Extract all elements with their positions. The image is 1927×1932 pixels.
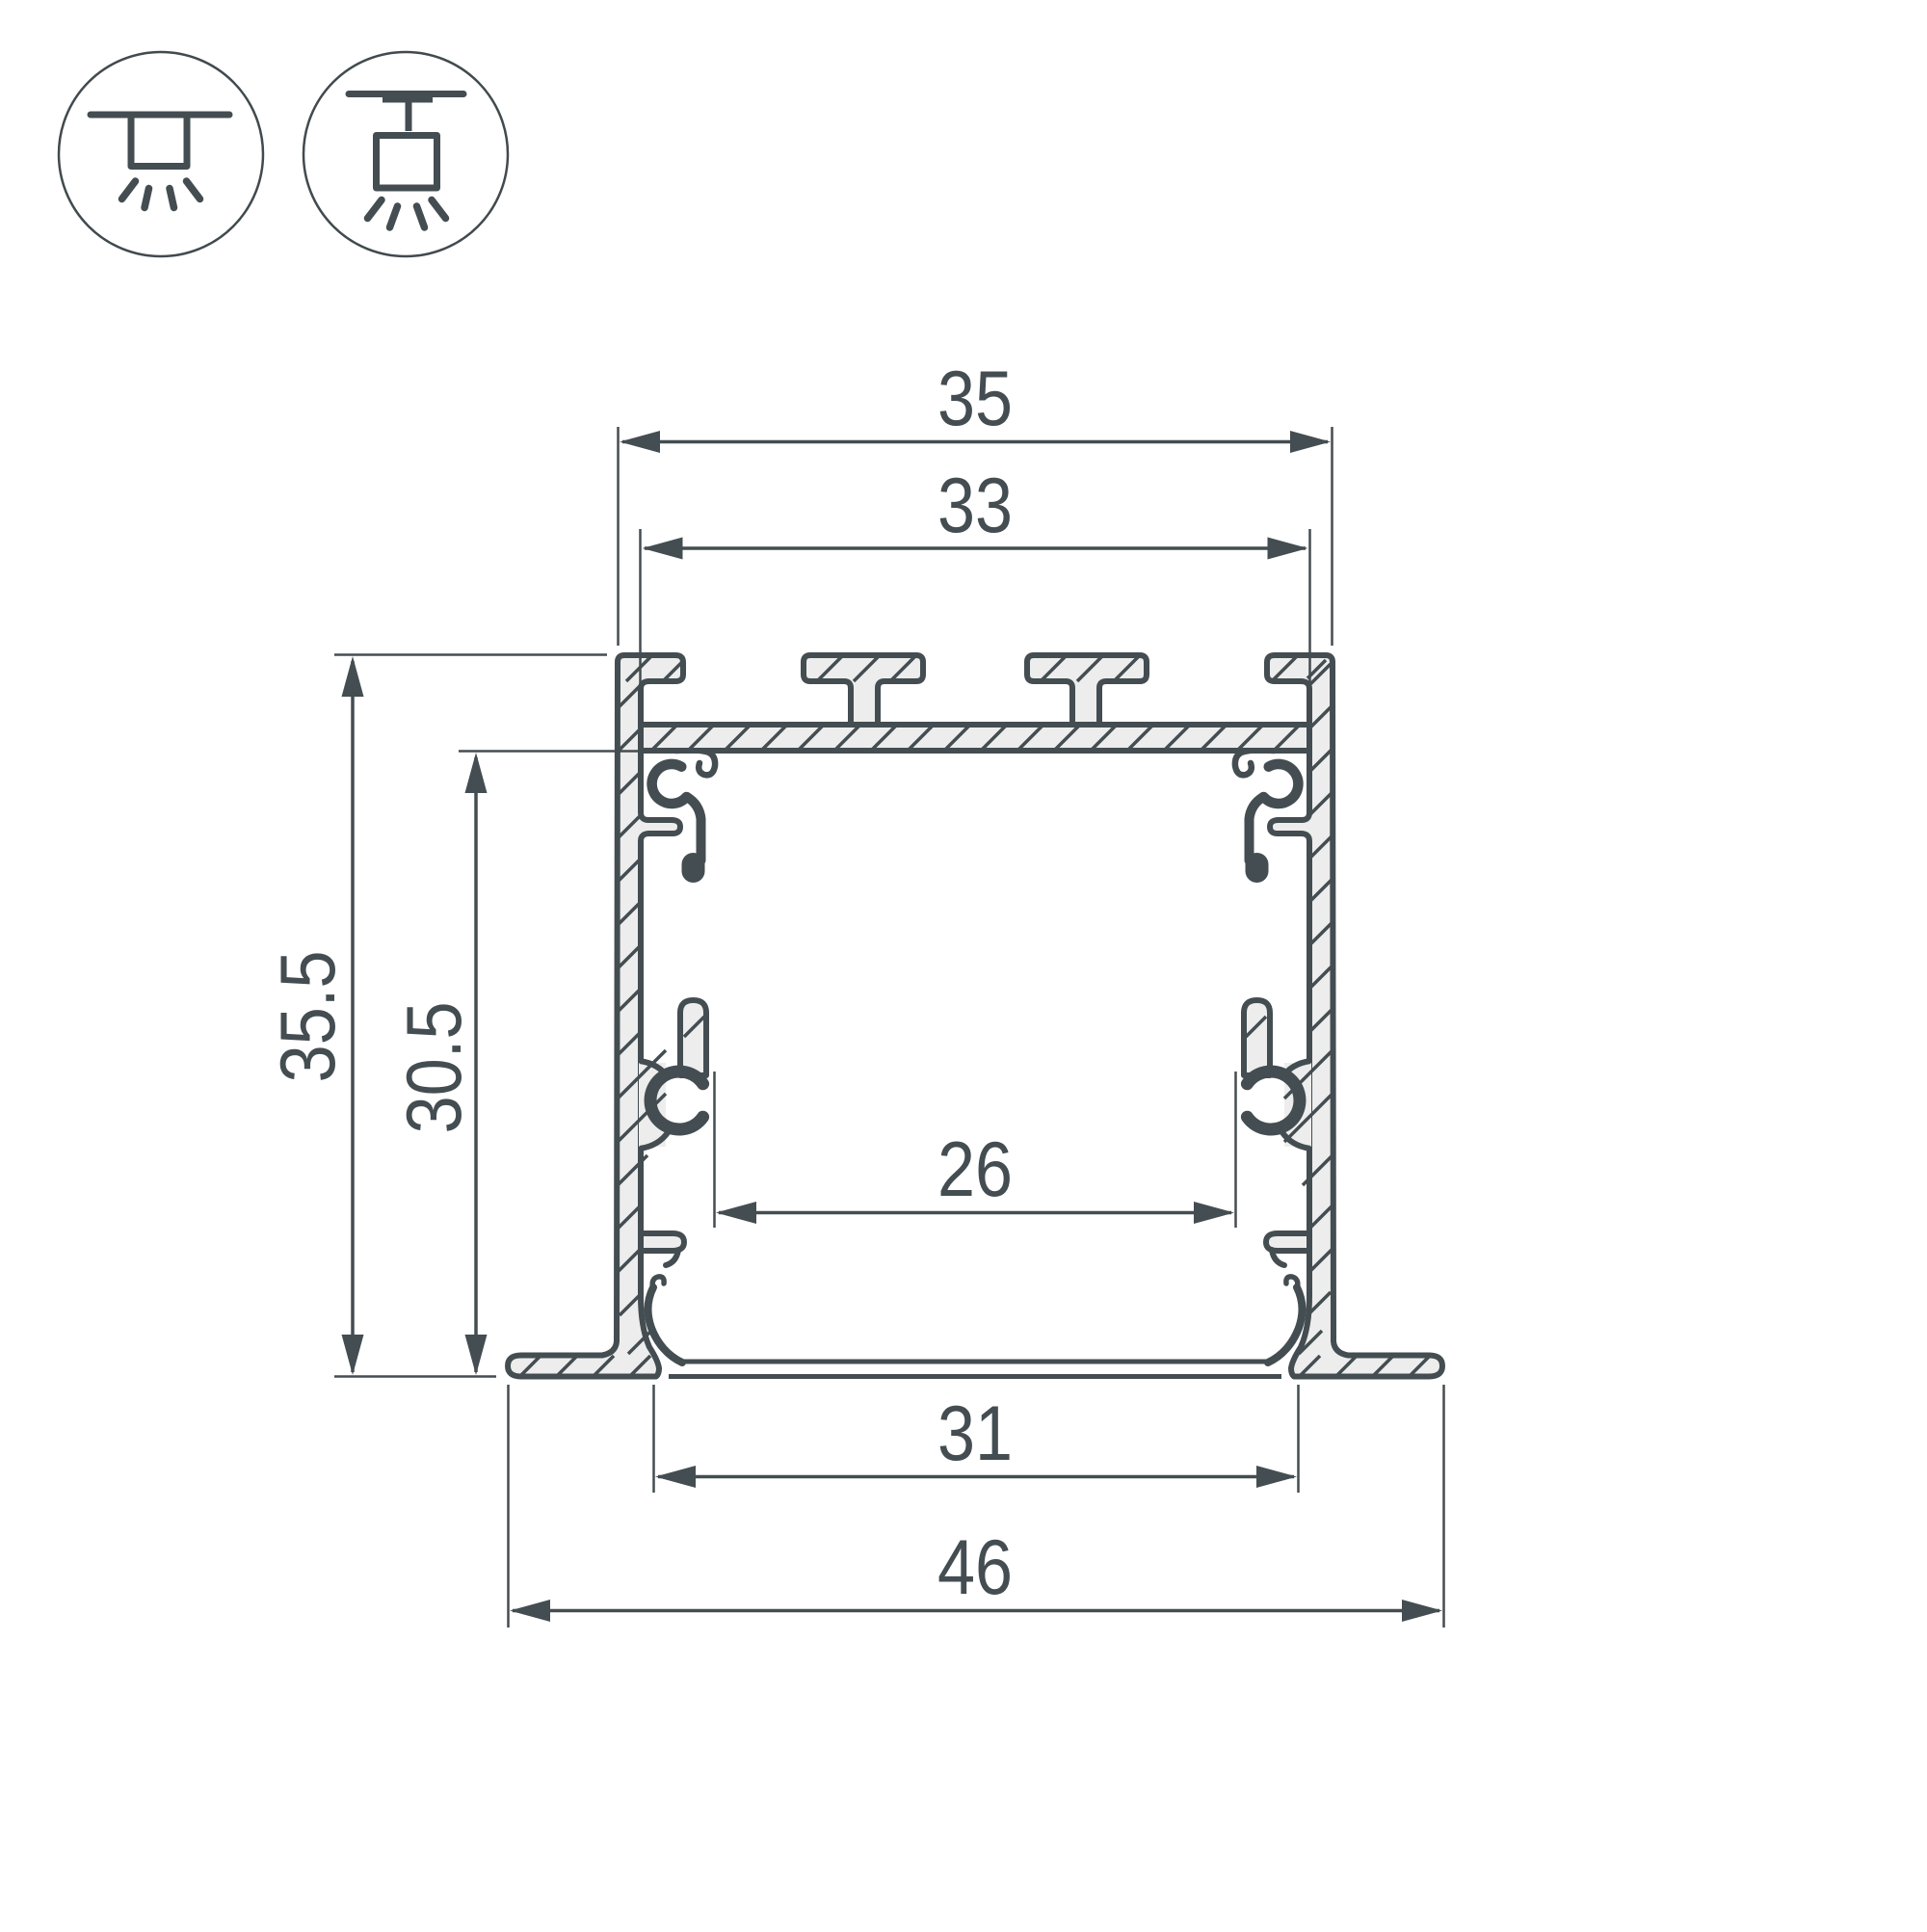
svg-text:31: 31 xyxy=(937,1390,1013,1477)
svg-text:26: 26 xyxy=(937,1126,1013,1213)
svg-text:46: 46 xyxy=(937,1524,1013,1611)
svg-text:35.5: 35.5 xyxy=(265,951,352,1083)
svg-text:35: 35 xyxy=(937,356,1013,442)
svg-text:30.5: 30.5 xyxy=(391,1002,478,1134)
svg-text:33: 33 xyxy=(937,463,1013,549)
